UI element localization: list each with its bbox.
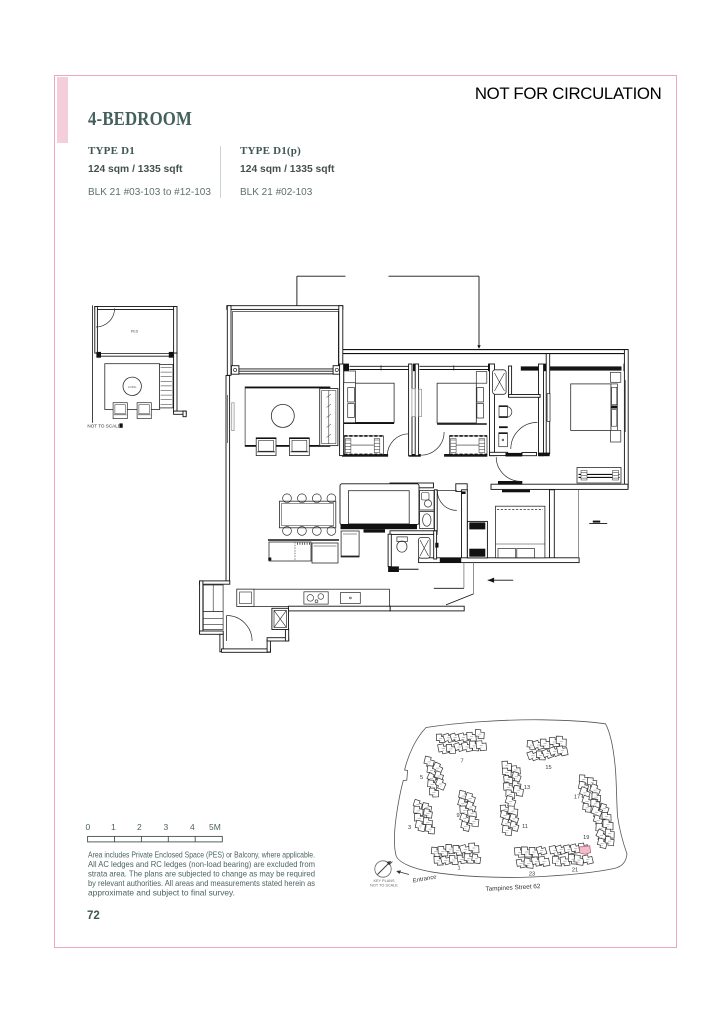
svg-text:9: 9 [456, 813, 459, 819]
svg-text:approximate and subject to fin: approximate and subject to final survey. [88, 888, 235, 898]
svg-text:Area includes Private Enclosed: Area includes Private Enclosed Space (PE… [88, 850, 315, 860]
svg-text:by relevant authorities. All a: by relevant authorities. All areas and m… [88, 878, 315, 888]
svg-text:NOT TO SCALE: NOT TO SCALE [370, 884, 398, 888]
svg-text:1: 1 [457, 866, 460, 872]
svg-text:23: 23 [529, 872, 535, 878]
svg-text:19: 19 [583, 835, 589, 841]
svg-text:15: 15 [545, 765, 551, 771]
svg-text:All AC ledges and RC ledges (n: All AC ledges and RC ledges (non-load be… [88, 859, 315, 869]
svg-text:KEY PLANS: KEY PLANS [373, 879, 395, 883]
svg-text:21: 21 [572, 868, 578, 874]
svg-text:PES: PES [131, 329, 139, 333]
svg-text:17: 17 [574, 795, 580, 801]
svg-text:11: 11 [522, 824, 528, 830]
svg-text:strata area. The plans are sub: strata area. The plans are subjected to … [88, 869, 315, 879]
svg-text:13: 13 [524, 785, 530, 791]
svg-text:5: 5 [420, 775, 423, 781]
svg-text:LIVING: LIVING [128, 385, 137, 389]
svg-text:NOT TO SCALE: NOT TO SCALE [87, 424, 120, 429]
svg-text:3: 3 [408, 825, 411, 831]
svg-text:7: 7 [460, 759, 463, 765]
svg-text:Tampines Street 62: Tampines Street 62 [485, 883, 541, 893]
svg-text:Entrance: Entrance [412, 874, 437, 884]
